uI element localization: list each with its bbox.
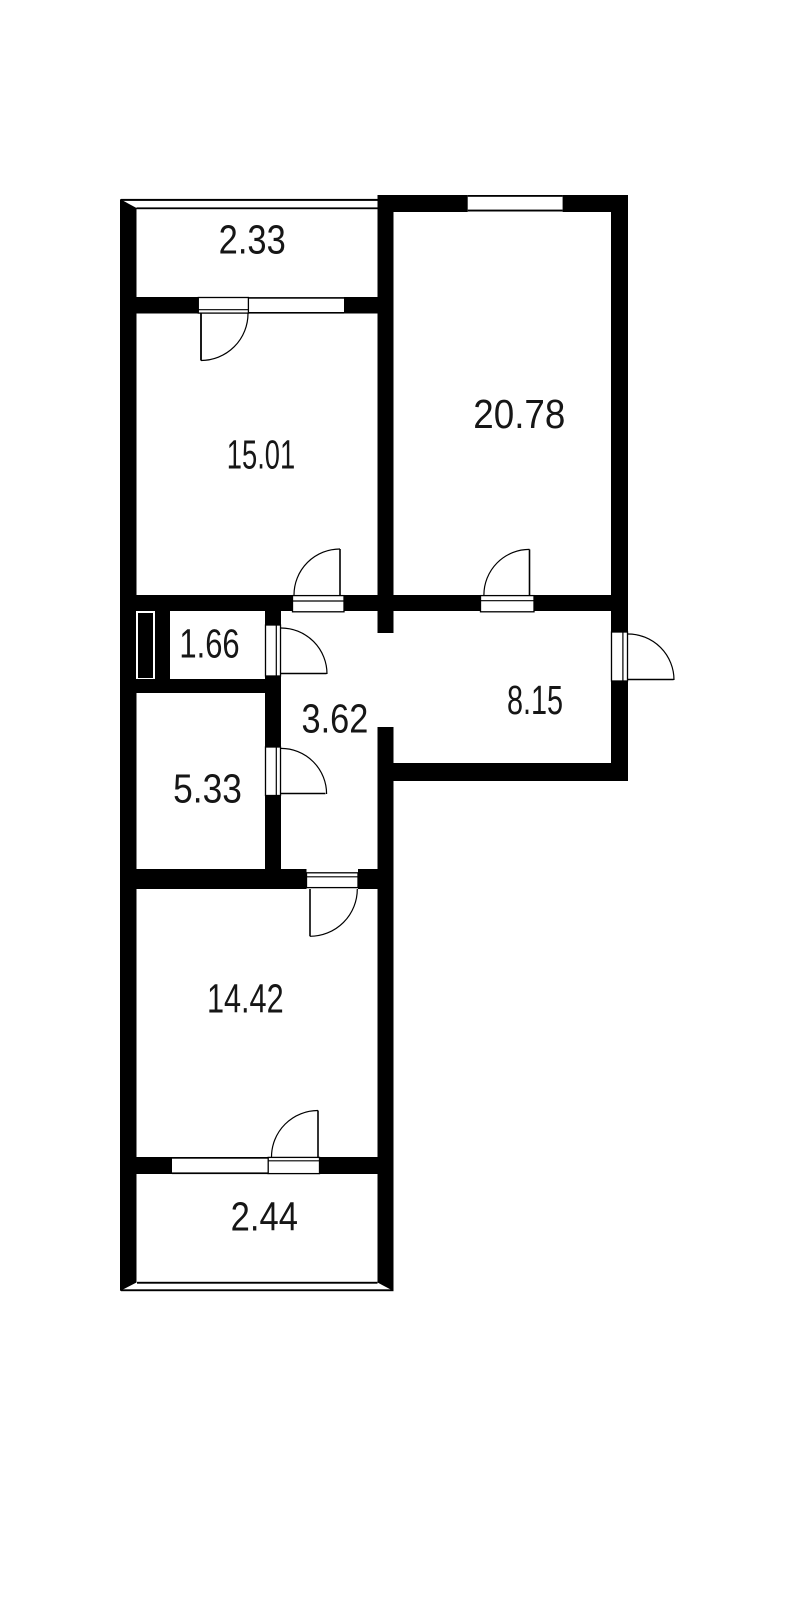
- svg-text:20.78: 20.78: [473, 392, 565, 437]
- svg-text:2.44: 2.44: [231, 1195, 298, 1240]
- svg-text:1.66: 1.66: [179, 620, 239, 666]
- svg-text:3.62: 3.62: [302, 697, 369, 743]
- svg-text:15.01: 15.01: [227, 432, 295, 478]
- svg-text:5.33: 5.33: [173, 766, 242, 812]
- svg-text:2.33: 2.33: [219, 218, 286, 263]
- svg-text:8.15: 8.15: [507, 677, 563, 723]
- svg-text:14.42: 14.42: [207, 975, 284, 1021]
